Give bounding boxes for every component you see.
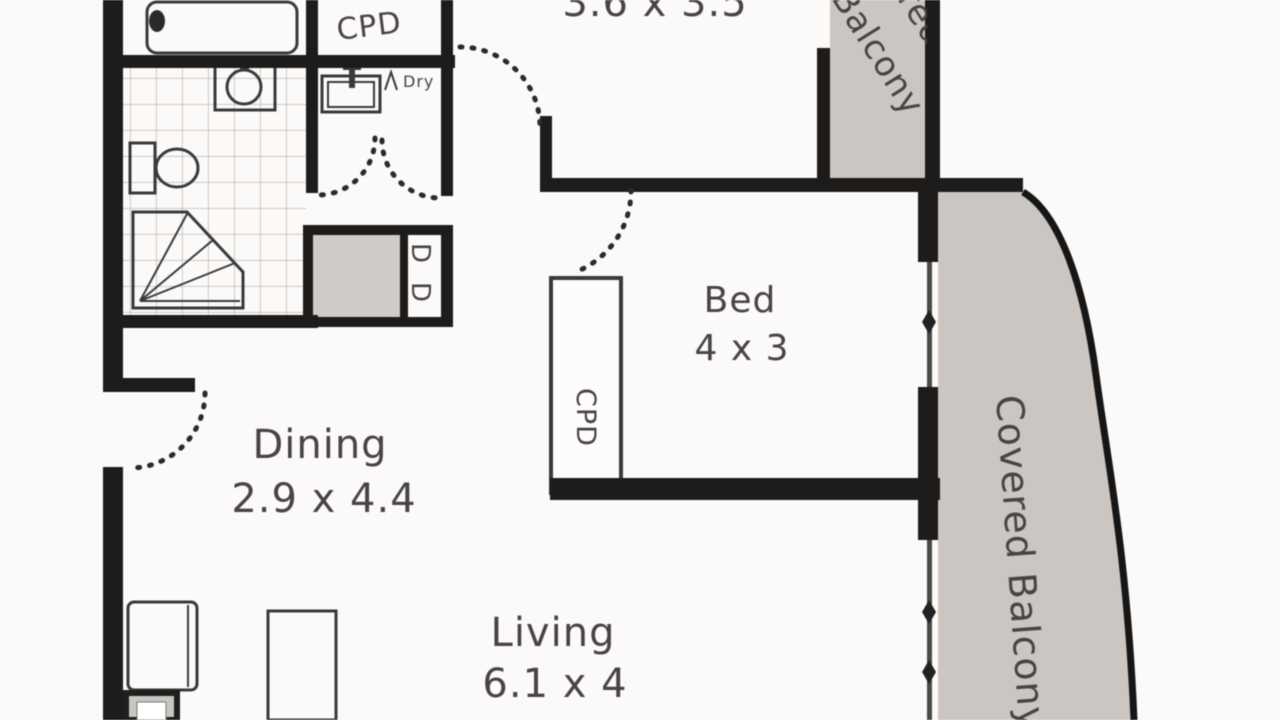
wall-top-balcony-right	[925, 0, 940, 183]
dining-dims-label: 2.9 x 4.4	[231, 476, 416, 522]
unit-bottom-border	[303, 317, 453, 327]
window-line-living	[927, 540, 932, 720]
kitchen-sink-unit	[126, 693, 177, 720]
wall-left-lower	[103, 467, 123, 720]
bed-dims-label: 4 x 3	[695, 328, 790, 369]
unit-left-border	[303, 225, 313, 327]
wall-bath-laundry	[306, 0, 318, 193]
appliance-shade	[313, 235, 400, 317]
floor-plan-image: 3.6 x 3.5 Bed 4 x 3 Dining 2.9 x 4.4 Liv…	[0, 0, 1280, 720]
wall-bath-top	[103, 55, 455, 68]
top-room-dims-label: 3.6 x 3.5	[562, 0, 747, 26]
wall-bed-bottom	[550, 478, 940, 500]
wall-bed-top	[550, 178, 1023, 192]
robe-letter-bottom: D	[405, 282, 435, 303]
wall-laundry-hall	[441, 0, 453, 196]
living-room-label: Living	[491, 610, 616, 656]
wall-right-a	[918, 190, 938, 262]
dining-room-label: Dining	[252, 422, 387, 468]
bathtub-tap-icon	[149, 10, 165, 32]
bedroom-cupboard	[551, 278, 621, 493]
unit-right-border	[441, 225, 453, 327]
wall-top-balcony-left	[817, 48, 830, 183]
wall-right-b	[918, 387, 938, 540]
dry-label: Dry	[403, 72, 434, 91]
wall-entry-stub	[103, 378, 195, 392]
unit-top-border	[303, 225, 453, 235]
living-dims-label: 6.1 x 4	[482, 661, 627, 707]
sink-unit-inner	[137, 702, 166, 720]
cupboard-bedroom-label: CPD	[570, 388, 601, 447]
robe-letter-top: D	[405, 243, 435, 264]
wall-bath-bottom	[103, 315, 318, 328]
unit-divider	[400, 225, 408, 327]
floor-plan-svg: 3.6 x 3.5 Bed 4 x 3 Dining 2.9 x 4.4 Liv…	[0, 0, 1280, 720]
bed-room-label: Bed	[704, 280, 777, 321]
